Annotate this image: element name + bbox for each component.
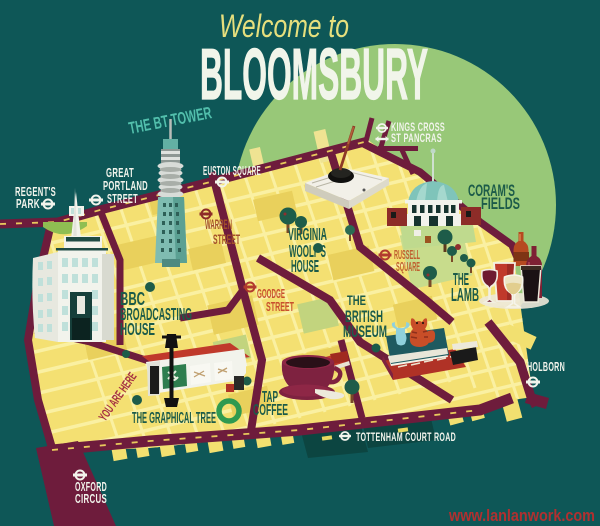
svg-text:WARREN: WARREN xyxy=(205,217,232,232)
svg-text:THE GRAPHICAL TREE: THE GRAPHICAL TREE xyxy=(132,410,216,427)
svg-text:www.lanlanwork.com: www.lanlanwork.com xyxy=(448,506,595,525)
svg-text:STREET: STREET xyxy=(107,191,138,206)
svg-text:ST PANCRAS: ST PANCRAS xyxy=(391,131,442,145)
svg-text:STREET: STREET xyxy=(266,299,294,314)
svg-text:BLOOMSBURY: BLOOMSBURY xyxy=(200,35,428,115)
svg-text:LAMB: LAMB xyxy=(451,285,479,305)
svg-text:SQUARE: SQUARE xyxy=(396,260,420,274)
svg-text:THE: THE xyxy=(347,292,366,308)
svg-text:STREET: STREET xyxy=(213,232,240,247)
svg-text:CIRCUS: CIRCUS xyxy=(75,492,107,506)
svg-text:HOLBORN: HOLBORN xyxy=(527,359,565,374)
svg-text:EUSTON SQUARE: EUSTON SQUARE xyxy=(203,164,261,178)
svg-text:COFFEE: COFFEE xyxy=(253,402,288,419)
svg-text:TOTTENHAM COURT ROAD: TOTTENHAM COURT ROAD xyxy=(356,430,456,444)
svg-text:HOUSE: HOUSE xyxy=(291,256,319,276)
svg-text:FIELDS: FIELDS xyxy=(481,195,520,213)
svg-text:HOUSE: HOUSE xyxy=(120,319,155,339)
svg-text:MUSEUM: MUSEUM xyxy=(343,323,387,341)
svg-text:PARK: PARK xyxy=(16,196,40,211)
